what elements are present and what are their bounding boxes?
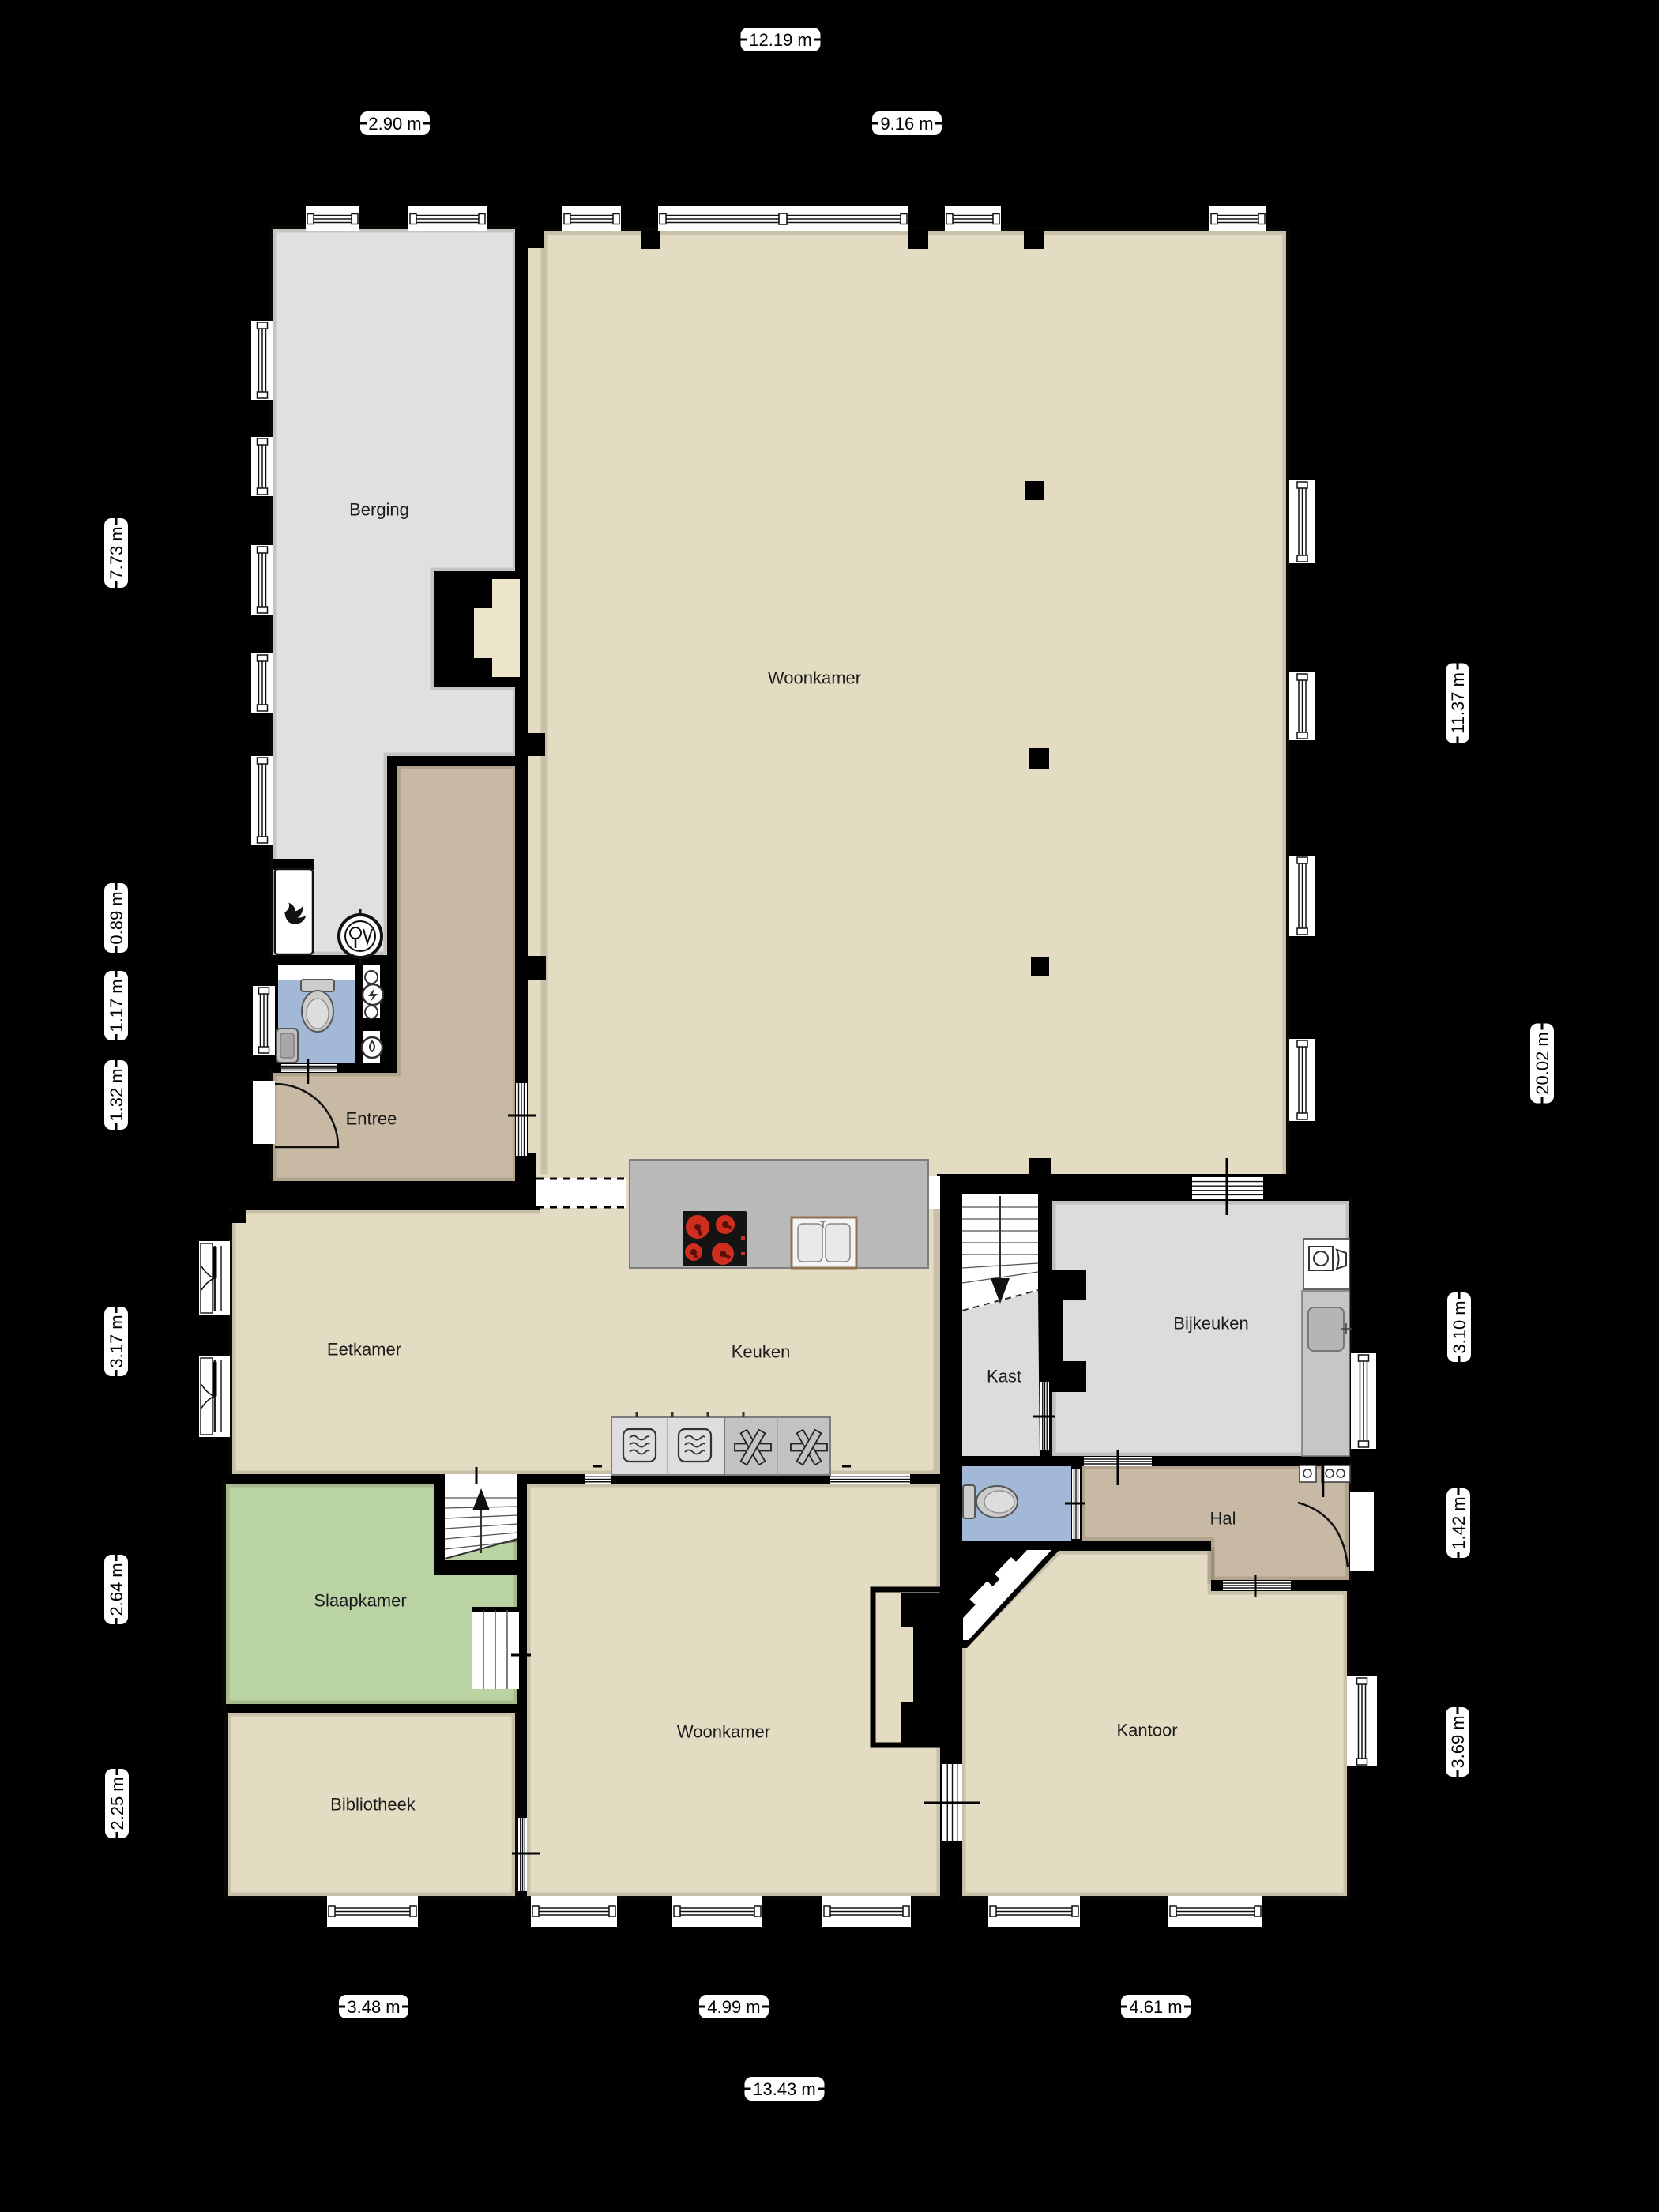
svg-text:Eetkamer: Eetkamer [327, 1340, 401, 1360]
svg-text:1.17 m: 1.17 m [107, 979, 126, 1032]
svg-text:13.43 m: 13.43 m [753, 2079, 816, 2099]
svg-text:Kast: Kast [987, 1367, 1021, 1386]
svg-text:2.64 m: 2.64 m [107, 1563, 126, 1616]
svg-text:11.37 m: 11.37 m [1448, 672, 1468, 734]
svg-text:Slaapkamer: Slaapkamer [314, 1591, 406, 1611]
svg-text:2.25 m: 2.25 m [107, 1777, 127, 1830]
svg-text:1.42 m: 1.42 m [1449, 1496, 1469, 1549]
svg-text:20.02 m: 20.02 m [1533, 1032, 1552, 1095]
svg-text:Woonkamer: Woonkamer [768, 668, 861, 688]
svg-text:Hal: Hal [1209, 1509, 1236, 1529]
svg-text:12.19 m: 12.19 m [749, 30, 812, 50]
svg-text:4.99 m: 4.99 m [707, 1997, 760, 2017]
svg-text:2.90 m: 2.90 m [368, 114, 421, 134]
svg-text:Keuken: Keuken [732, 1342, 791, 1362]
svg-text:3.48 m: 3.48 m [347, 1997, 400, 2017]
svg-text:Entree: Entree [346, 1109, 397, 1129]
svg-text:Kantoor: Kantoor [1116, 1721, 1177, 1740]
svg-text:3.17 m: 3.17 m [107, 1315, 126, 1367]
svg-text:9.16 m: 9.16 m [880, 114, 933, 134]
svg-text:1.32 m: 1.32 m [107, 1068, 126, 1121]
svg-text:Woonkamer: Woonkamer [677, 1722, 770, 1742]
svg-text:3.10 m: 3.10 m [1450, 1300, 1469, 1353]
svg-text:4.61 m: 4.61 m [1129, 1997, 1182, 2017]
svg-text:3.69 m: 3.69 m [1448, 1715, 1468, 1768]
svg-text:7.73 m: 7.73 m [107, 526, 126, 579]
svg-text:Berging: Berging [349, 500, 409, 520]
svg-text:Bijkeuken: Bijkeuken [1173, 1314, 1248, 1334]
svg-text:0.89 m: 0.89 m [107, 891, 126, 944]
svg-text:Bibliotheek: Bibliotheek [330, 1795, 416, 1815]
